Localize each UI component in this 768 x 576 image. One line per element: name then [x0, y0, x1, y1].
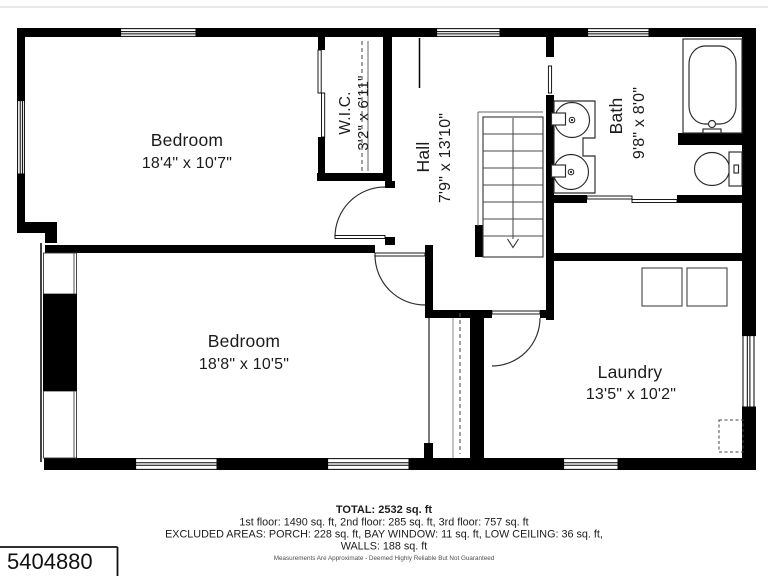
- window: [742, 334, 756, 410]
- label-bedroom1-dims: 18'4" x 10'7": [142, 155, 232, 172]
- listing-id-text: 5404880: [7, 549, 93, 574]
- label-laundry-name: Laundry: [598, 362, 663, 382]
- label-wic-dims: 3'2" x 6'11": [355, 75, 372, 150]
- label-hall-dims: 7'9" x 13'10": [437, 113, 454, 203]
- label-laundry-dims: 13'5" x 10'2": [586, 386, 676, 403]
- label-bath-name: Bath: [606, 98, 626, 135]
- staircase-down: [478, 112, 543, 257]
- washer: [642, 268, 682, 306]
- walls-area-text: WALLS: 188 sq. ft: [341, 541, 428, 553]
- window: [562, 458, 621, 470]
- bathtub: [683, 39, 742, 133]
- disclaimer-text: Measurements Are Approximate - Deemed Hi…: [274, 555, 495, 562]
- label-wic-name: W.I.C.: [337, 91, 354, 134]
- label-bedroom1-name: Bedroom: [151, 130, 223, 150]
- floor-areas-text: 1st floor: 1490 sq. ft, 2nd floor: 285 s…: [239, 517, 528, 529]
- window: [435, 28, 503, 37]
- floorplan-svg: Bedroom 18'4" x 10'7" W.I.C. 3'2" x 6'11…: [0, 0, 768, 576]
- window: [586, 28, 652, 37]
- label-bath-dims: 9'8" x 8'0": [631, 87, 648, 159]
- bay-window-recess: [43, 253, 77, 458]
- pocket-door-bath: [548, 66, 551, 93]
- label-bedroom2-dims: 18'8" x 10'5": [199, 356, 289, 373]
- label-bedroom2-name: Bedroom: [208, 331, 280, 351]
- dryer: [687, 268, 727, 306]
- window: [134, 458, 220, 470]
- total-area-text: TOTAL: 2532 sq. ft: [336, 504, 433, 516]
- window: [17, 99, 25, 177]
- label-hall-name: Hall: [413, 142, 433, 173]
- window: [119, 28, 199, 37]
- window: [326, 458, 412, 470]
- toilet: [695, 152, 743, 186]
- excluded-areas-text: EXCLUDED AREAS: PORCH: 228 sq. ft, BAY W…: [165, 529, 603, 541]
